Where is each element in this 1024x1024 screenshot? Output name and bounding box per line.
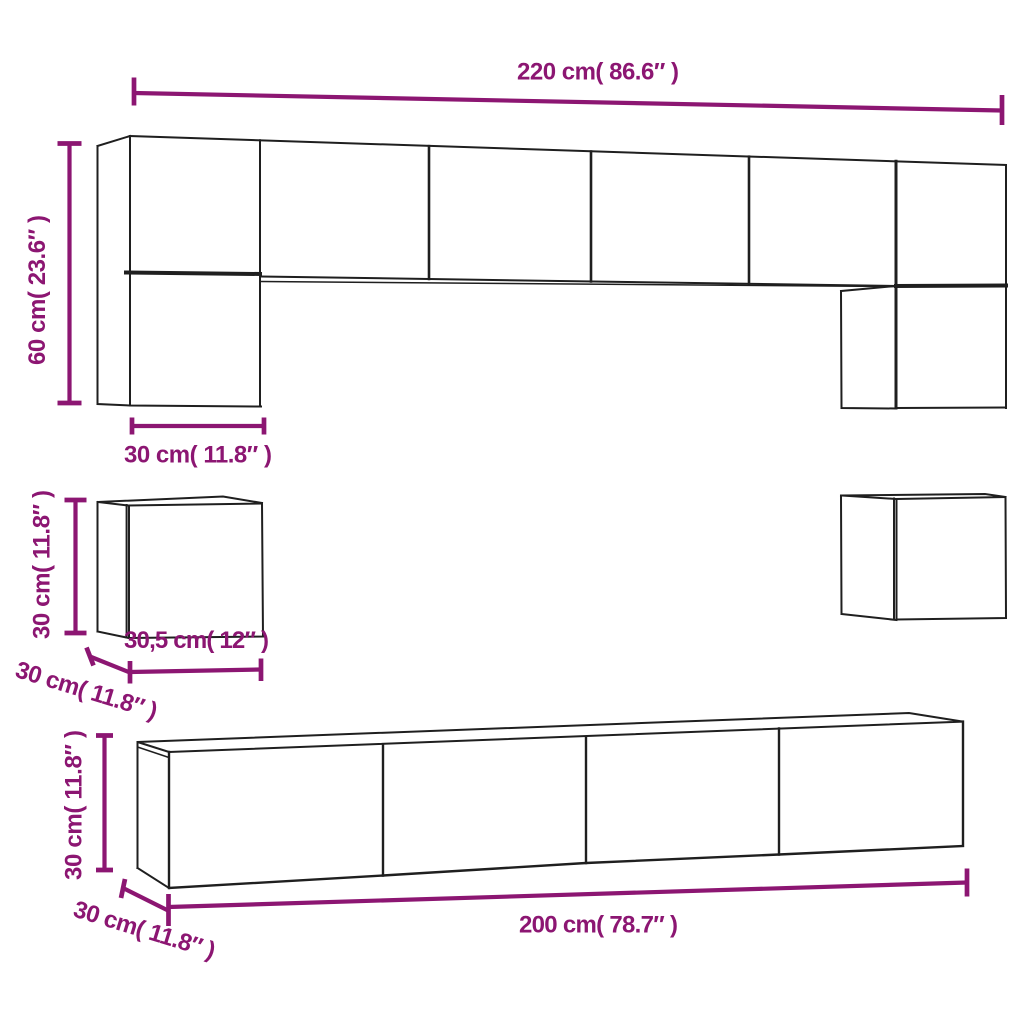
svg-text:200 cm( 78.7″ ): 200 cm( 78.7″ ): [519, 912, 678, 939]
svg-text:220 cm( 86.6″ ): 220 cm( 86.6″ ): [517, 59, 679, 86]
svg-text:30 cm( 11.8″ ): 30 cm( 11.8″ ): [124, 442, 272, 469]
svg-text:60 cm( 23.6″ ): 60 cm( 23.6″ ): [24, 215, 51, 365]
svg-text:30,5 cm( 12″ ): 30,5 cm( 12″ ): [124, 627, 269, 654]
svg-text:30 cm( 11.8″ ): 30 cm( 11.8″ ): [29, 490, 56, 639]
svg-text:30 cm( 11.8″ ): 30 cm( 11.8″ ): [61, 730, 88, 880]
